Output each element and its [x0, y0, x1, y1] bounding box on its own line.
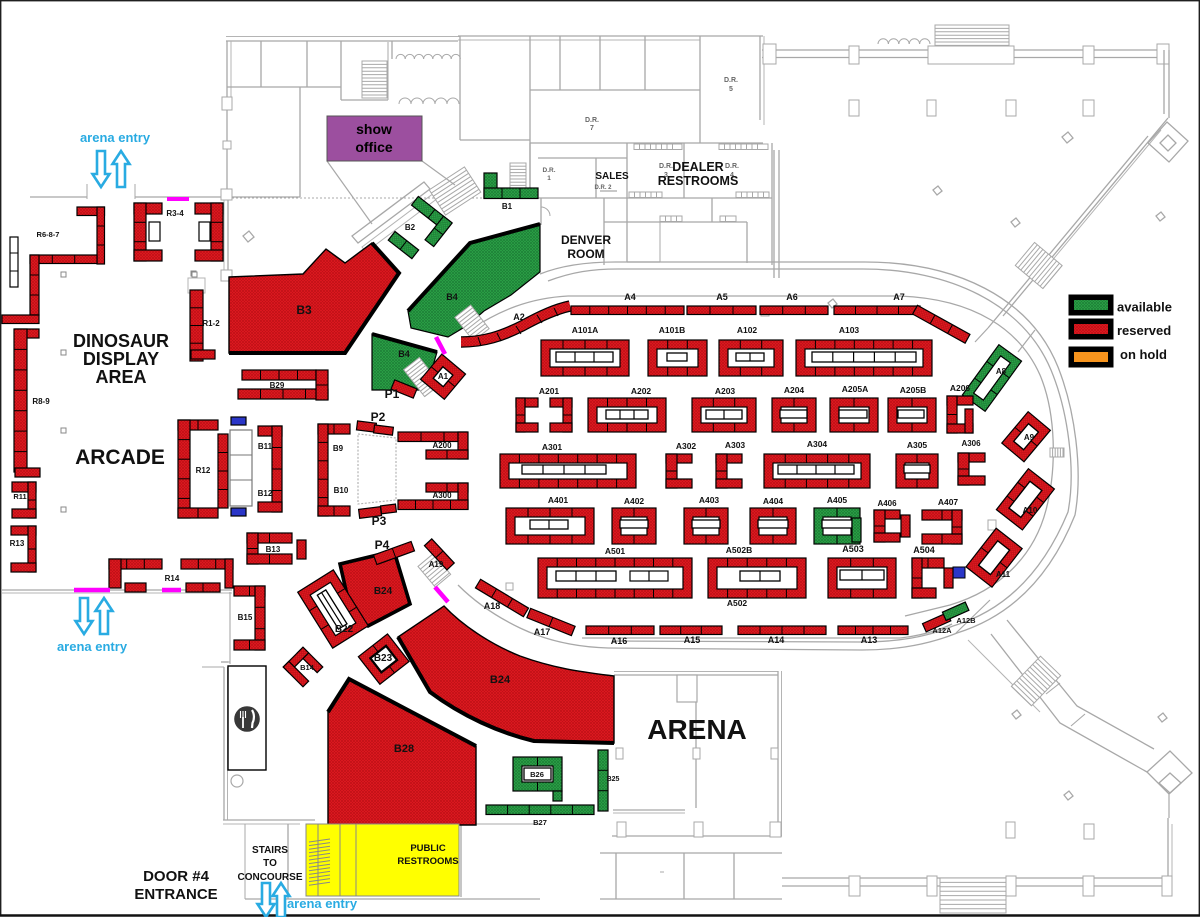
svg-text:B29: B29 [270, 381, 285, 390]
svg-text:1: 1 [547, 175, 551, 182]
svg-text:A1: A1 [438, 372, 449, 381]
svg-text:A501: A501 [605, 546, 626, 556]
svg-text:P2: P2 [371, 410, 386, 424]
svg-text:A11: A11 [996, 570, 1011, 579]
svg-text:A502: A502 [727, 598, 748, 608]
svg-text:ENTRANCE: ENTRANCE [134, 886, 217, 903]
svg-text:A9: A9 [1024, 433, 1035, 442]
svg-text:A101A: A101A [572, 325, 598, 335]
svg-text:A16: A16 [611, 636, 628, 646]
svg-text:A404: A404 [763, 496, 784, 506]
svg-text:arena entry: arena entry [287, 896, 358, 911]
svg-text:available: available [1117, 300, 1172, 315]
svg-text:A4: A4 [624, 292, 636, 302]
svg-text:A5: A5 [716, 292, 728, 302]
svg-text:A406: A406 [877, 499, 897, 508]
svg-text:DOOR #4: DOOR #4 [143, 868, 210, 885]
svg-text:B10: B10 [334, 486, 349, 495]
svg-text:RESTROOMS: RESTROOMS [397, 856, 458, 867]
svg-text:5: 5 [729, 86, 733, 93]
svg-text:B3: B3 [296, 303, 312, 317]
svg-text:A300: A300 [432, 491, 452, 500]
svg-text:CONCOURSE: CONCOURSE [237, 872, 302, 883]
svg-text:DISPLAY: DISPLAY [83, 349, 159, 369]
svg-text:A303: A303 [725, 440, 746, 450]
svg-text:R14: R14 [165, 574, 180, 583]
svg-text:A203: A203 [715, 386, 736, 396]
svg-text:R3-4: R3-4 [166, 209, 184, 218]
svg-text:D.R.: D.R. [725, 163, 739, 170]
svg-text:A502B: A502B [726, 545, 752, 555]
svg-text:reserved: reserved [1117, 323, 1171, 338]
svg-text:A206: A206 [950, 383, 971, 393]
svg-text:P1: P1 [385, 387, 400, 401]
svg-text:B4: B4 [446, 292, 458, 302]
svg-text:A200: A200 [432, 441, 452, 450]
svg-text:B23: B23 [374, 653, 393, 664]
svg-text:B26: B26 [530, 770, 544, 779]
svg-text:R13: R13 [10, 539, 25, 548]
svg-text:B11: B11 [258, 442, 273, 451]
svg-text:R6-8-7: R6-8-7 [37, 230, 60, 239]
svg-text:A8: A8 [996, 367, 1007, 376]
svg-text:A304: A304 [807, 439, 828, 449]
svg-text:AREA: AREA [95, 367, 146, 387]
svg-text:A14: A14 [768, 635, 785, 645]
svg-text:STAIRS: STAIRS [252, 845, 288, 856]
svg-text:D.R.: D.R. [724, 77, 738, 84]
svg-text:A15: A15 [684, 635, 701, 645]
svg-text:B22: B22 [335, 624, 354, 635]
svg-text:DENVER: DENVER [561, 233, 611, 247]
svg-text:P3: P3 [372, 514, 387, 528]
svg-text:A504: A504 [913, 545, 935, 555]
svg-text:A12B: A12B [956, 616, 976, 625]
svg-text:R11: R11 [13, 492, 26, 501]
svg-text:A19: A19 [429, 560, 444, 569]
svg-text:A17: A17 [534, 627, 551, 637]
svg-text:A301: A301 [542, 442, 563, 452]
svg-text:B24: B24 [490, 674, 511, 686]
svg-text:office: office [355, 139, 393, 155]
svg-text:show: show [356, 121, 392, 137]
svg-text:B25: B25 [607, 776, 620, 783]
svg-text:D.R.: D.R. [585, 117, 599, 124]
svg-text:B4: B4 [398, 349, 410, 359]
svg-text:A2: A2 [513, 312, 525, 322]
svg-text:A202: A202 [631, 386, 652, 396]
svg-text:A18: A18 [484, 601, 501, 611]
svg-text:on hold: on hold [1120, 347, 1167, 362]
svg-text:A407: A407 [938, 497, 959, 507]
svg-text:B15: B15 [238, 613, 253, 622]
svg-text:B27: B27 [533, 818, 547, 827]
svg-text:B9: B9 [333, 444, 344, 453]
svg-text:A204: A204 [784, 385, 805, 395]
svg-text:D.R.: D.R. [543, 167, 556, 174]
svg-text:A302: A302 [676, 441, 697, 451]
svg-text:A402: A402 [624, 496, 645, 506]
svg-text:DINOSAUR: DINOSAUR [73, 331, 169, 351]
svg-text:A13: A13 [861, 635, 878, 645]
svg-text:ARENA: ARENA [647, 714, 747, 745]
svg-text:A7: A7 [893, 292, 905, 302]
svg-text:A401: A401 [548, 495, 569, 505]
svg-text:B12: B12 [258, 489, 273, 498]
svg-text:R12: R12 [196, 466, 211, 475]
svg-text:B28: B28 [394, 743, 414, 755]
svg-text:B14: B14 [300, 663, 315, 672]
svg-text:B24: B24 [374, 586, 393, 597]
svg-text:A403: A403 [699, 495, 720, 505]
svg-text:DEALER: DEALER [672, 160, 723, 174]
svg-text:A10: A10 [1023, 506, 1038, 515]
svg-text:TO: TO [263, 858, 277, 869]
svg-text:ROOM: ROOM [567, 247, 604, 261]
svg-text:A12A: A12A [932, 626, 952, 635]
svg-text:7: 7 [590, 125, 594, 132]
svg-text:B2: B2 [405, 223, 416, 232]
svg-text:arena entry: arena entry [57, 639, 128, 654]
svg-text:P4: P4 [375, 538, 390, 552]
svg-text:A205A: A205A [842, 384, 868, 394]
svg-text:arena entry: arena entry [80, 130, 151, 145]
svg-text:A205B: A205B [900, 385, 926, 395]
svg-text:R8-9: R8-9 [32, 397, 50, 406]
svg-text:A305: A305 [907, 440, 928, 450]
svg-text:B1: B1 [502, 202, 513, 211]
svg-text:A306: A306 [961, 439, 981, 448]
svg-text:D.R. 2: D.R. 2 [594, 185, 612, 191]
svg-text:A103: A103 [839, 325, 860, 335]
svg-text:SALES: SALES [595, 171, 629, 182]
svg-text:A503: A503 [842, 544, 864, 554]
svg-text:A101B: A101B [659, 325, 685, 335]
svg-text:B13: B13 [266, 545, 281, 554]
svg-text:ARCADE: ARCADE [75, 446, 165, 469]
svg-text:A201: A201 [539, 386, 560, 396]
svg-text:R1-2: R1-2 [202, 319, 220, 328]
svg-text:A405: A405 [827, 495, 848, 505]
svg-text:D.R.: D.R. [659, 163, 673, 170]
svg-text:PUBLIC: PUBLIC [410, 843, 446, 854]
svg-text:A102: A102 [737, 325, 758, 335]
svg-text:RESTROOMS: RESTROOMS [658, 174, 739, 188]
svg-text:A6: A6 [786, 292, 798, 302]
